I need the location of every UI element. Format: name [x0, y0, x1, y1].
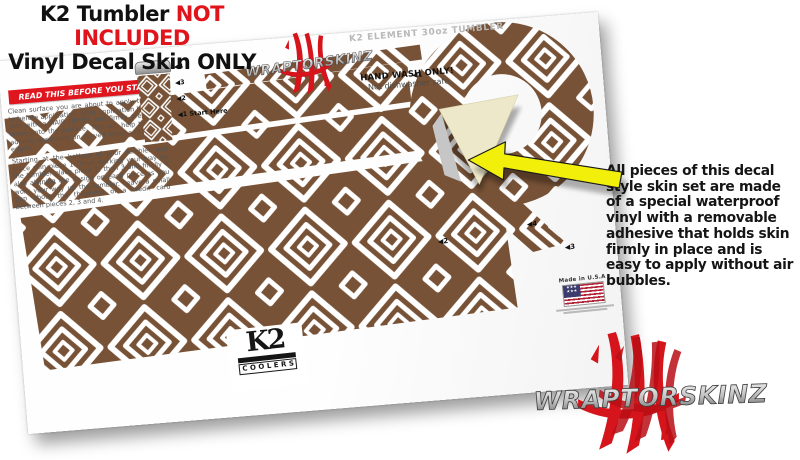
piece-marker-4: ◀4	[527, 220, 538, 229]
us-flag-icon: ★★★★★★	[562, 281, 606, 307]
guide-marker-1-start: ◀1 Start Here	[177, 105, 247, 119]
brand-logo-bottom: WRAPTORSKINZ	[528, 328, 800, 460]
page-title: K2 Tumbler NOT INCLUDED Vinyl Decal Skin…	[4, 2, 260, 74]
peel-arrow-icon	[458, 134, 631, 205]
peel-arrow	[458, 134, 631, 205]
tumbler-body-pattern	[135, 73, 176, 143]
title-text: K2 Tumbler	[40, 2, 176, 26]
adhesive-note: All pieces of this decal style skin set …	[606, 164, 798, 290]
guide-marker-2: ◀2	[176, 89, 246, 103]
guide-marker-3: ◀3	[175, 73, 245, 87]
brand-text-bottom: WRAPTORSKINZ	[533, 379, 768, 416]
piece-marker-1: ◀1	[412, 71, 423, 80]
piece-marker-2: ◀2	[438, 237, 449, 246]
piece-marker-3: ◀3	[565, 243, 576, 252]
k2-coolers-logo: K2 COOLERS	[226, 322, 308, 392]
subtitle-text: Vinyl Decal Skin ONLY	[4, 50, 260, 74]
product-image: K2 Tumbler NOT INCLUDED Vinyl Decal Skin…	[0, 0, 800, 460]
